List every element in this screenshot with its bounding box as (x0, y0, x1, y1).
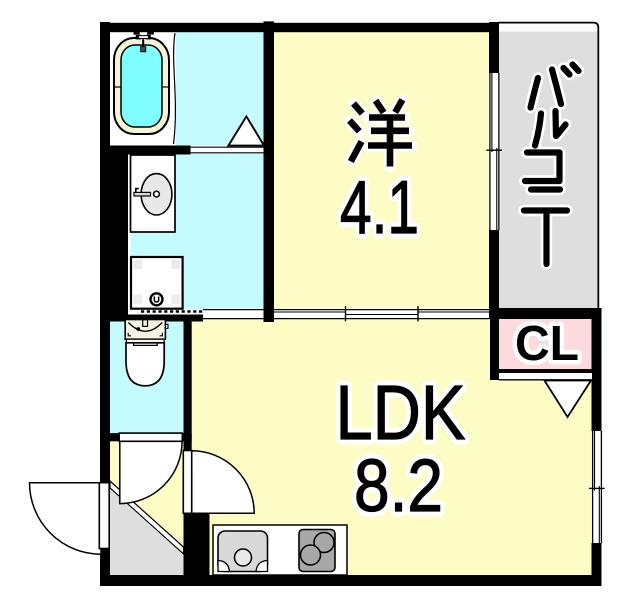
svg-text:4.1: 4.1 (340, 165, 419, 249)
svg-text:8.2: 8.2 (354, 444, 443, 527)
svg-text:CL: CL (515, 317, 579, 371)
